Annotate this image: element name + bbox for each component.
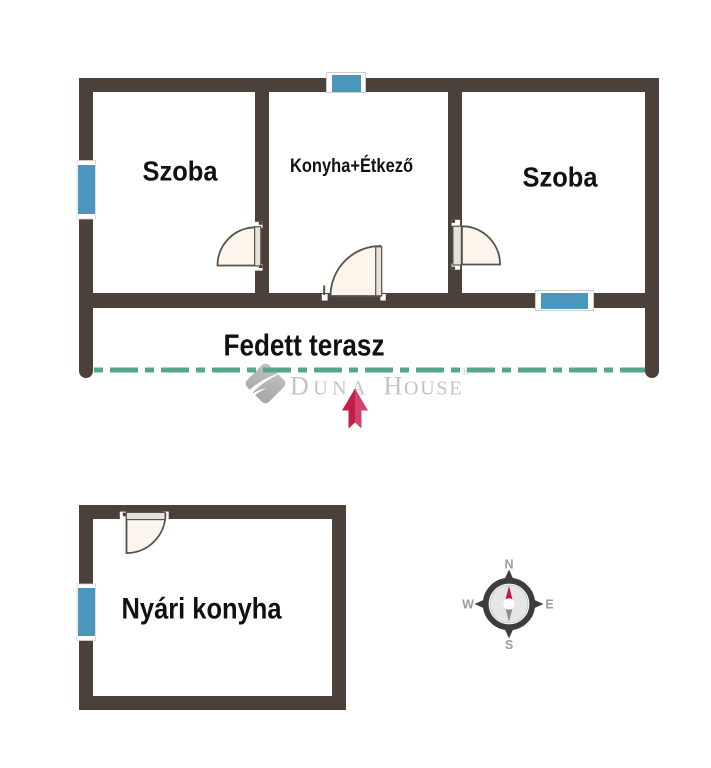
- svg-text:Szoba: Szoba: [143, 156, 219, 187]
- svg-text:Konyha+Étkező: Konyha+Étkező: [290, 154, 413, 177]
- svg-text:N: N: [504, 558, 513, 572]
- svg-text:S: S: [505, 638, 513, 652]
- svg-text:Nyári konyha: Nyári konyha: [122, 593, 283, 626]
- svg-text:W: W: [462, 598, 474, 612]
- svg-text:Fedett terasz: Fedett terasz: [224, 328, 385, 363]
- svg-text:Szoba: Szoba: [523, 162, 599, 193]
- svg-text:E: E: [545, 598, 553, 612]
